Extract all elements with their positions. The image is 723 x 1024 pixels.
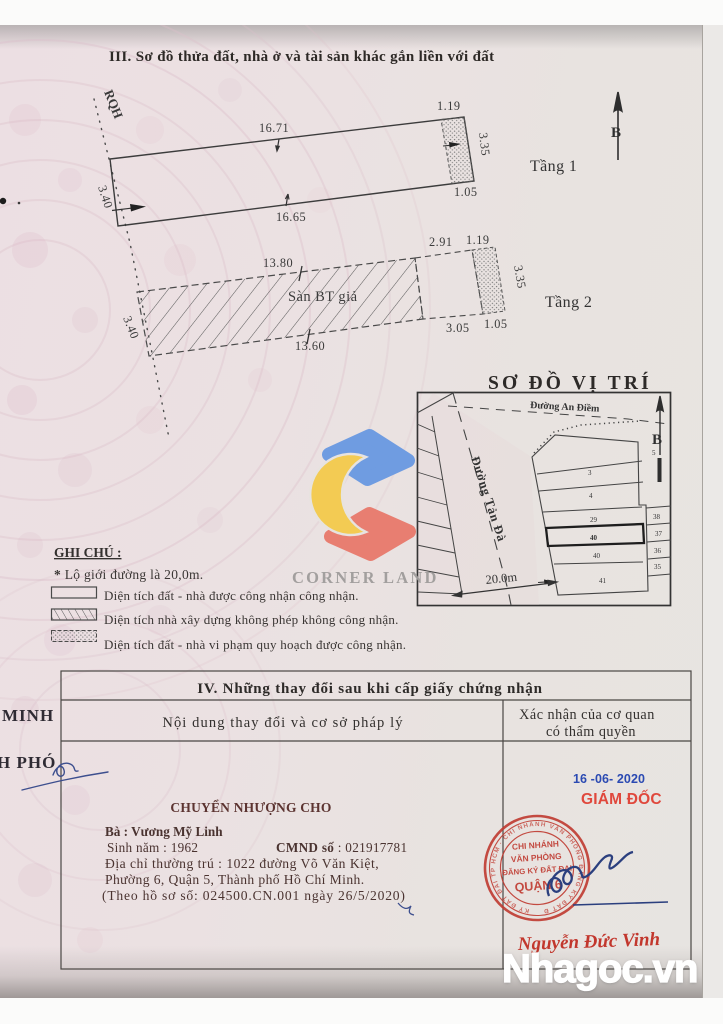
svg-text:4: 4 <box>589 492 593 500</box>
svg-text:1.05: 1.05 <box>484 317 508 331</box>
svg-text:16 -06- 2020: 16 -06- 2020 <box>573 772 645 786</box>
svg-text:16.71: 16.71 <box>259 121 289 135</box>
svg-text:(Theo hồ sơ số: 024500.CN.001: (Theo hồ sơ số: 024500.CN.001 ngày 26/5/… <box>102 888 406 904</box>
svg-text:40: 40 <box>593 552 601 560</box>
svg-text:Đường An Điềm: Đường An Điềm <box>530 400 600 415</box>
svg-text:1.05: 1.05 <box>454 185 478 199</box>
svg-text:13.80: 13.80 <box>263 256 293 270</box>
svg-text:35: 35 <box>654 563 662 571</box>
svg-text:3.05: 3.05 <box>446 321 470 335</box>
svg-text:3.35: 3.35 <box>511 264 529 290</box>
svg-text:Phường 6, Quận 5, Thành phố Hồ: Phường 6, Quận 5, Thành phố Hồ Chí Minh. <box>105 872 365 887</box>
svg-text:3.40: 3.40 <box>120 314 142 341</box>
svg-text:40: 40 <box>590 534 598 542</box>
svg-text:RQH: RQH <box>101 88 126 121</box>
svg-text:Địa chỉ thường trú : 1022 đườn: Địa chỉ thường trú : 1022 đường Võ Văn K… <box>105 856 379 871</box>
svg-text:Tầng 2: Tầng 2 <box>545 294 592 311</box>
svg-text:36: 36 <box>654 547 662 555</box>
svg-text:Sàn BT giả: Sàn BT giả <box>288 289 358 305</box>
svg-text:Diện tích nhà xây dựng không p: Diện tích nhà xây dựng không phép không … <box>104 612 399 627</box>
svg-text:Bà : Vương Mỹ Linh: Bà : Vương Mỹ Linh <box>105 824 223 839</box>
svg-text:SƠ ĐỒ VỊ TRÍ: SƠ ĐỒ VỊ TRÍ <box>488 372 652 394</box>
svg-text:3: 3 <box>588 469 592 477</box>
svg-text:* Lộ giới đường là 20,0m.: * Lộ giới đường là 20,0m. <box>54 567 203 582</box>
svg-text:VĂN PHÒNG: VĂN PHÒNG <box>511 850 562 865</box>
svg-text:có thẩm quyền: có thẩm quyền <box>546 724 636 740</box>
svg-text:CORNER LAND: CORNER LAND <box>292 568 439 587</box>
svg-text:5: 5 <box>652 449 656 457</box>
svg-text:CHI NHÁNH: CHI NHÁNH <box>512 837 560 851</box>
svg-text:B: B <box>652 432 662 448</box>
svg-text:1.19: 1.19 <box>437 99 461 113</box>
svg-text:GIÁM ĐỐC: GIÁM ĐỐC <box>581 790 662 808</box>
svg-text:Xác nhận của cơ quan: Xác nhận của cơ quan <box>519 707 655 723</box>
svg-text:13.60: 13.60 <box>295 339 325 353</box>
svg-text:MINH: MINH <box>2 706 54 725</box>
svg-text:1.19: 1.19 <box>466 233 490 247</box>
svg-text:CMND số : 021917781: CMND số : 021917781 <box>276 840 407 855</box>
svg-text:H PHÓ: H PHÓ <box>0 753 56 772</box>
svg-text:Tầng 1: Tầng 1 <box>530 158 577 175</box>
svg-text:B: B <box>611 125 621 141</box>
svg-text:41: 41 <box>599 577 607 585</box>
svg-text:16.65: 16.65 <box>276 210 306 224</box>
svg-text:29: 29 <box>590 516 598 524</box>
svg-text:IV. Những thay đổi sau khi cấp: IV. Những thay đổi sau khi cấp giấy chứn… <box>197 681 542 697</box>
svg-text:GHI CHÚ :: GHI CHÚ : <box>54 545 122 560</box>
svg-text:38: 38 <box>653 513 661 521</box>
svg-text:Nội dung thay đổi và cơ sở phá: Nội dung thay đổi và cơ sở pháp lý <box>162 715 403 731</box>
svg-text:Diện tích đất - nhà vi phạm qu: Diện tích đất - nhà vi phạm quy hoạch đư… <box>104 637 406 652</box>
svg-text:Sinh năm : 1962: Sinh năm : 1962 <box>107 840 198 855</box>
svg-text:37: 37 <box>655 530 663 538</box>
svg-text:CHUYỂN NHƯỢNG CHO: CHUYỂN NHƯỢNG CHO <box>170 800 331 815</box>
svg-text:Diện tích đất - nhà được công: Diện tích đất - nhà được công nhận công … <box>104 588 359 603</box>
svg-text:3.40: 3.40 <box>95 184 116 211</box>
svg-text:2.91: 2.91 <box>429 235 453 249</box>
svg-text:3.35: 3.35 <box>476 132 493 157</box>
